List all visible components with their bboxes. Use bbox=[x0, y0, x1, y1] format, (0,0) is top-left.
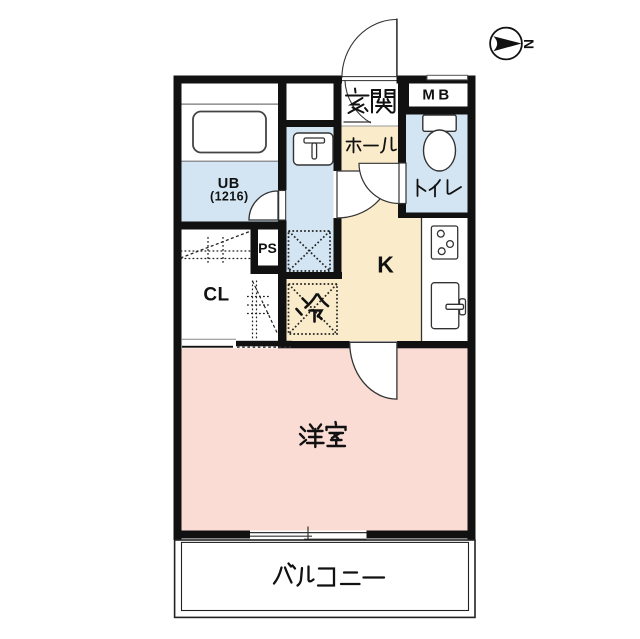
svg-text:MB: MB bbox=[422, 87, 452, 104]
svg-text:CL: CL bbox=[203, 285, 229, 306]
svg-text:K: K bbox=[377, 252, 394, 278]
svg-text:PS: PS bbox=[258, 240, 277, 256]
svg-text:N: N bbox=[521, 39, 537, 49]
svg-text:(1216): (1216) bbox=[210, 190, 249, 204]
